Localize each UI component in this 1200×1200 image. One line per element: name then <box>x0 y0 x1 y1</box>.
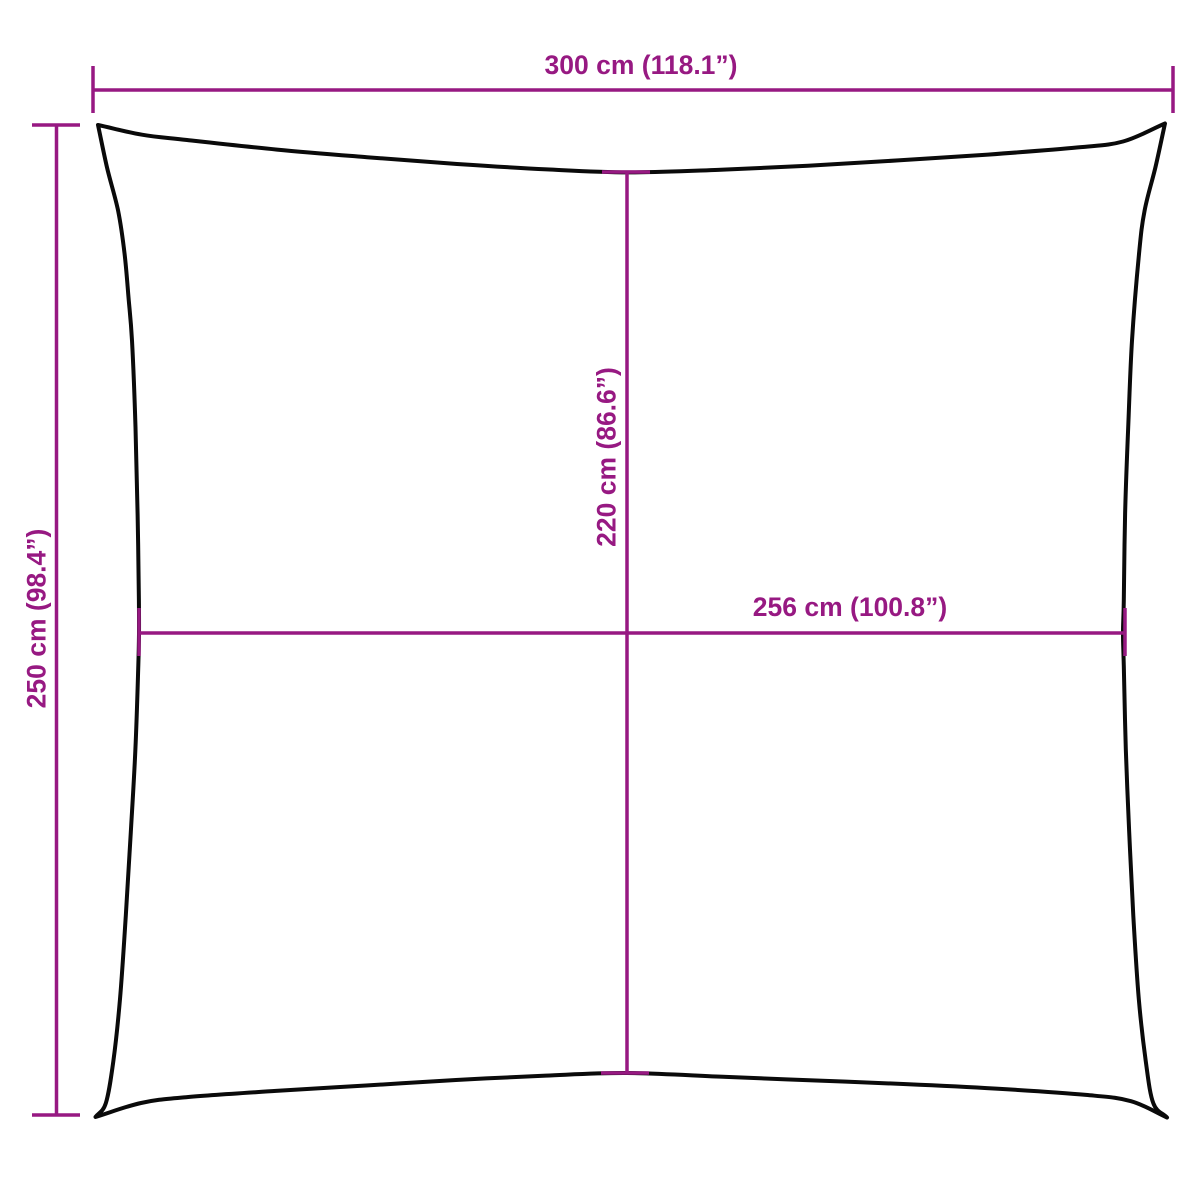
svg-text:256 cm (100.8”): 256 cm (100.8”) <box>753 592 947 622</box>
svg-text:220 cm (86.6”): 220 cm (86.6”) <box>592 367 622 547</box>
svg-text:250 cm (98.4”): 250 cm (98.4”) <box>22 529 52 709</box>
svg-text:300 cm (118.1”): 300 cm (118.1”) <box>545 50 738 80</box>
